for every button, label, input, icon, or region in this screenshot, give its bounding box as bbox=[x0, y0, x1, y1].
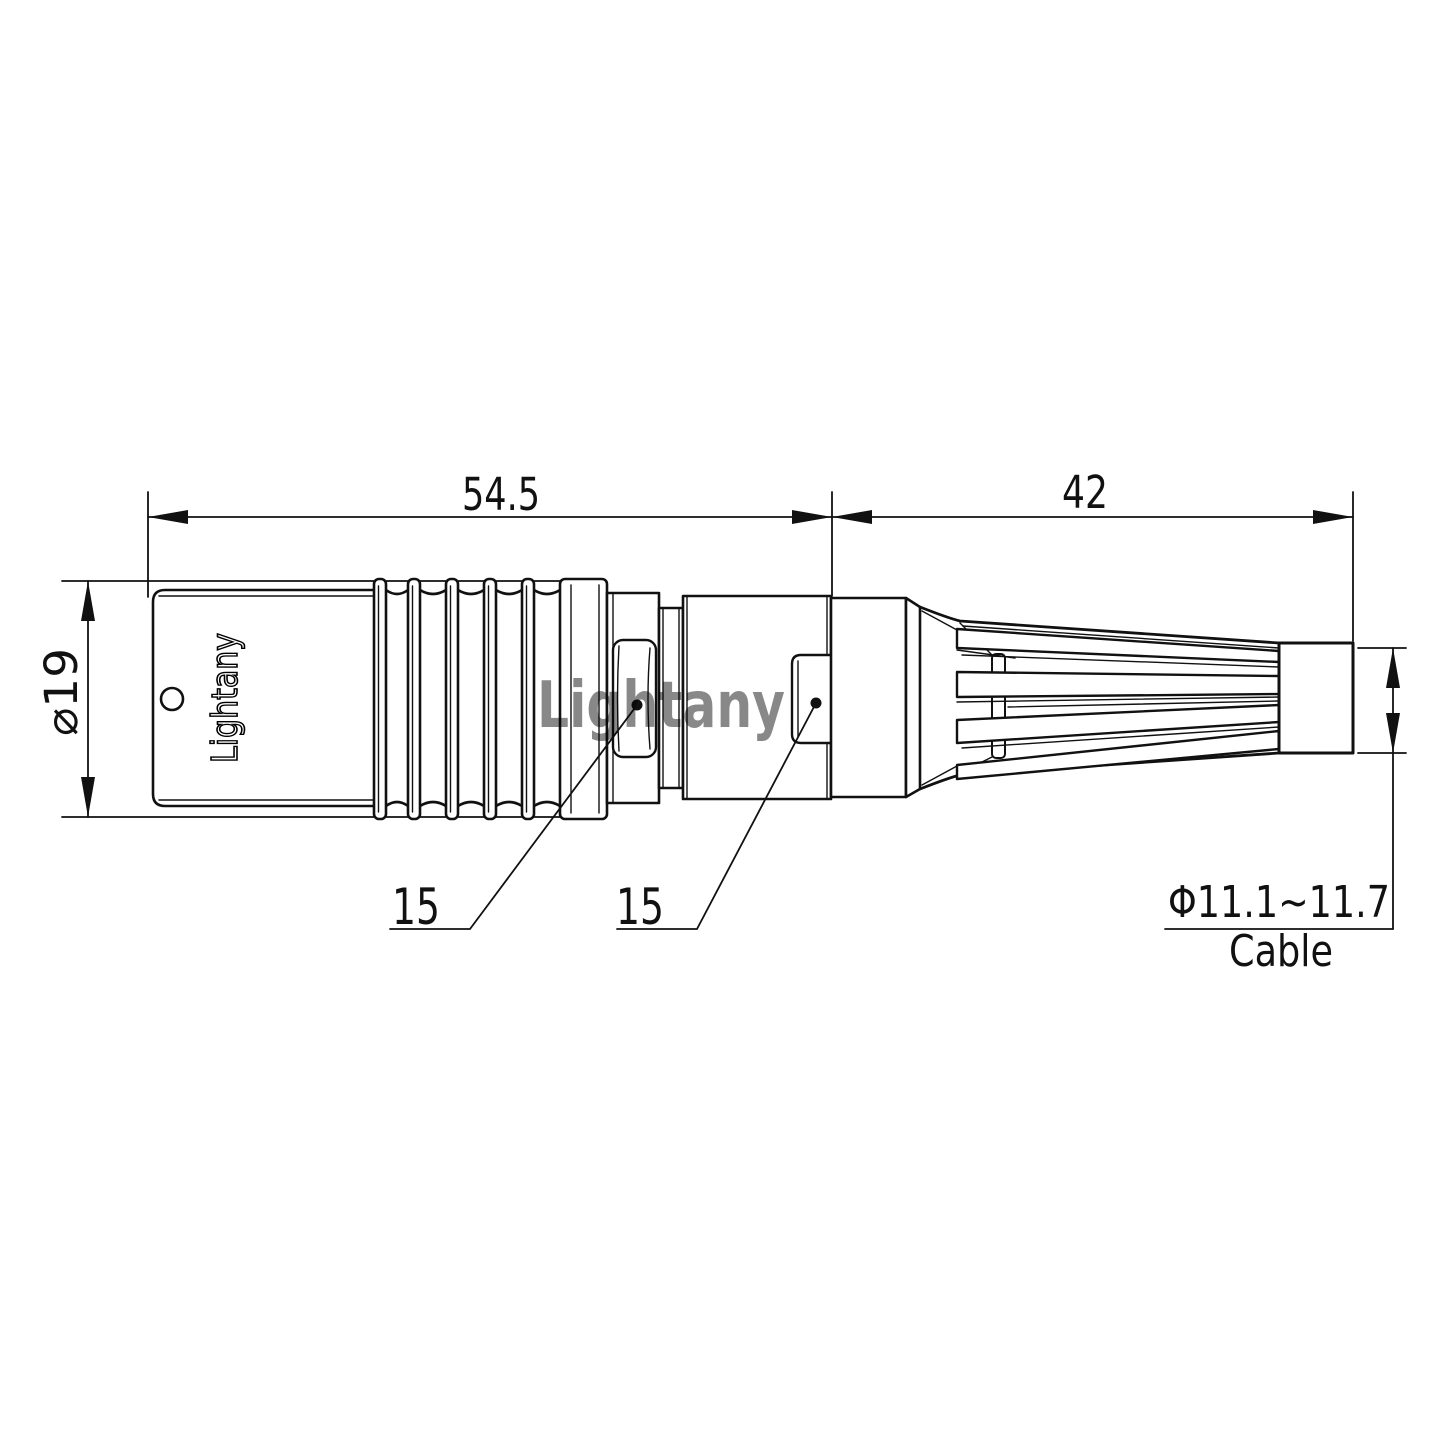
watermark-text: Lightany bbox=[537, 669, 785, 743]
connector-drawing: 54.5 42 ⌀19 15 15 Φ11.1~11.7 Cable Light… bbox=[0, 0, 1440, 1440]
dim-cable-range-label: Φ11.1~11.7 bbox=[1168, 877, 1390, 928]
grip-rib bbox=[374, 579, 386, 819]
arrow-rear-right bbox=[1313, 510, 1353, 524]
dim-shell-diameter-label: ⌀19 bbox=[35, 648, 88, 736]
shell-body bbox=[153, 590, 375, 806]
technical-drawing-page: 54.5 42 ⌀19 15 15 Φ11.1~11.7 Cable Light… bbox=[0, 0, 1440, 1440]
grip-rib bbox=[408, 579, 420, 819]
arrow-cable-bottom bbox=[1386, 713, 1400, 753]
boot-fin-2 bbox=[957, 672, 1279, 697]
strain-relief-boot bbox=[920, 607, 1279, 789]
arrow-shell-top bbox=[81, 581, 95, 621]
arrow-shell-bottom bbox=[81, 777, 95, 817]
shell-pin-hole bbox=[161, 688, 183, 710]
back-nut bbox=[831, 598, 906, 797]
grip-rib bbox=[484, 579, 496, 819]
arrow-cable-top bbox=[1386, 648, 1400, 688]
dim-rear-length-label: 42 bbox=[1062, 466, 1108, 519]
arrow-front-right bbox=[792, 510, 832, 524]
arrow-front-left bbox=[148, 510, 188, 524]
leader-dot-rear bbox=[811, 698, 822, 709]
body-engraving-text: Lightany bbox=[205, 633, 246, 763]
grip-rib bbox=[446, 579, 458, 819]
cable-end bbox=[1279, 643, 1353, 753]
arrow-rear-left bbox=[832, 510, 872, 524]
cable-word-label: Cable bbox=[1229, 926, 1333, 977]
back-nut-chamfer bbox=[906, 598, 920, 797]
dim-front-length-label: 54.5 bbox=[462, 468, 540, 521]
boot-base-web bbox=[992, 654, 1005, 758]
grip-rib bbox=[522, 579, 534, 819]
dim-front-flats-label: 15 bbox=[392, 878, 440, 936]
dim-rear-flats-label: 15 bbox=[616, 878, 664, 936]
